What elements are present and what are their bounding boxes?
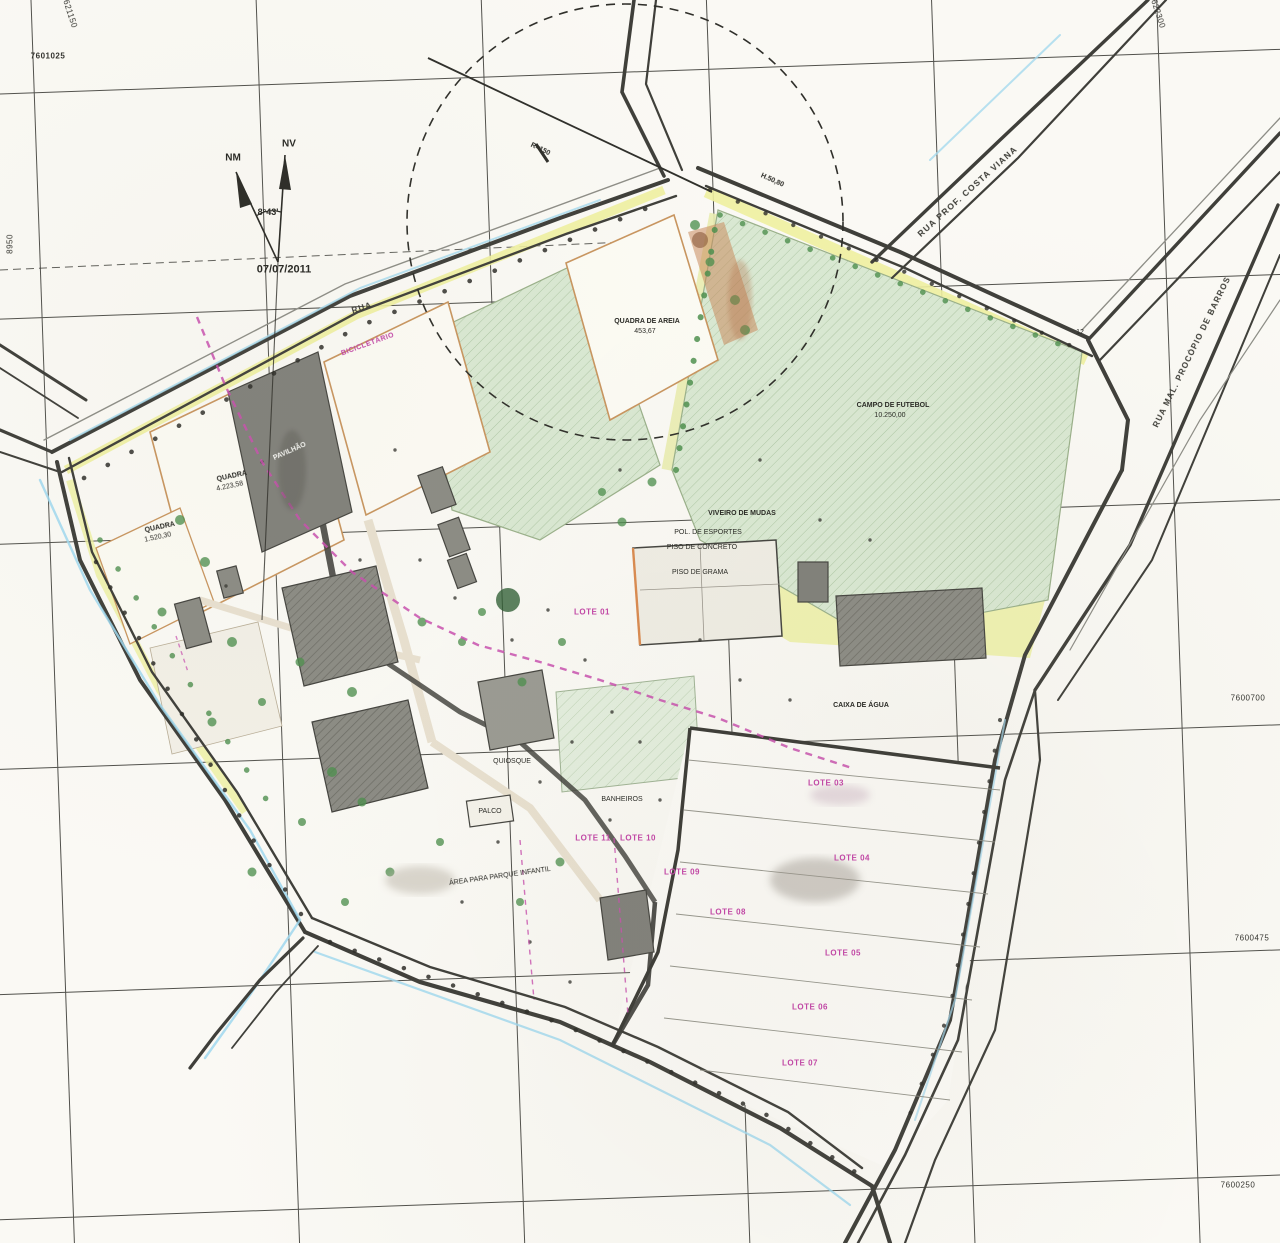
- compass-nv-label: NV: [282, 138, 296, 150]
- compass-nm-label: NM: [225, 152, 241, 164]
- viveiro-label: VIVEIRO DE MUDAS: [708, 510, 776, 518]
- quadra-top-area: 453,67: [634, 328, 655, 336]
- campo-area: 10.250,00: [874, 412, 905, 420]
- radius-label: R=150: [529, 142, 551, 158]
- grid-label-top-a: 621150: [61, 0, 79, 29]
- street-nw-label: RUA: [351, 301, 374, 316]
- bicicletario-label: BICICLETÁRIO: [340, 332, 395, 359]
- caixa-agua-label: CAIXA DE ÁGUA: [833, 702, 889, 710]
- street-costa-viana-label: RUA PROF. COSTA VIANA: [916, 145, 1020, 240]
- piso1-label: PISO DE CONCRETO: [667, 544, 737, 552]
- pavilhao-label: PAVILHÃO: [272, 441, 307, 463]
- lote-10-label: LOTE 10: [620, 833, 656, 842]
- dim-12-label: 12: [1076, 329, 1084, 337]
- label-layer: NM NV 8°43' 07/07/2011 7601025 621150 62…: [0, 0, 1280, 1243]
- lote-08-label: LOTE 08: [710, 907, 746, 916]
- lote-04-label: LOTE 04: [834, 853, 870, 862]
- scanned-site-plan: NM NV 8°43' 07/07/2011 7601025 621150 62…: [0, 0, 1280, 1243]
- palco-label: PALCO: [478, 808, 501, 816]
- campo-label: CAMPO DE FUTEBOL: [857, 402, 930, 410]
- parque-infantil-label: ÁREA PARA PARQUE INFANTIL: [449, 866, 552, 888]
- grid-label-right-a: 7600700: [1231, 693, 1266, 702]
- lote-06-label: LOTE 06: [792, 1002, 828, 1011]
- grid-label-right-c: 7600250: [1221, 1180, 1256, 1189]
- banheiros-label: BANHEIROS: [601, 796, 642, 804]
- lote-09-label: LOTE 09: [664, 867, 700, 876]
- compass-angle-label: 8°43': [258, 207, 279, 217]
- grid-label-top-b: 622300: [1149, 0, 1167, 30]
- pol-esportes-label: POL. DE ESPORTES: [674, 529, 742, 537]
- lote-05-label: LOTE 05: [825, 948, 861, 957]
- grid-label-top-left: 7601025: [31, 51, 66, 60]
- h-dimension-label: H.50,80: [759, 172, 785, 189]
- piso2-label: PISO DE GRAMA: [672, 569, 728, 577]
- quiosque-label: QUIOSQUE: [493, 758, 531, 766]
- lote-01-label: LOTE 01: [574, 607, 610, 616]
- lote-07-label: LOTE 07: [782, 1058, 818, 1067]
- grid-label-left-a: 8950: [5, 234, 14, 254]
- lote-03-label: LOTE 03: [808, 778, 844, 787]
- lote-11-label: LOTE 11: [575, 833, 611, 842]
- grid-label-right-b: 7600475: [1235, 933, 1270, 942]
- street-barros-label: RUA MAL. PROCÓPIO DE BARROS: [1151, 275, 1232, 429]
- survey-date: 07/07/2011: [257, 264, 311, 277]
- quadra-top-label: QUADRA DE AREIA: [614, 318, 680, 326]
